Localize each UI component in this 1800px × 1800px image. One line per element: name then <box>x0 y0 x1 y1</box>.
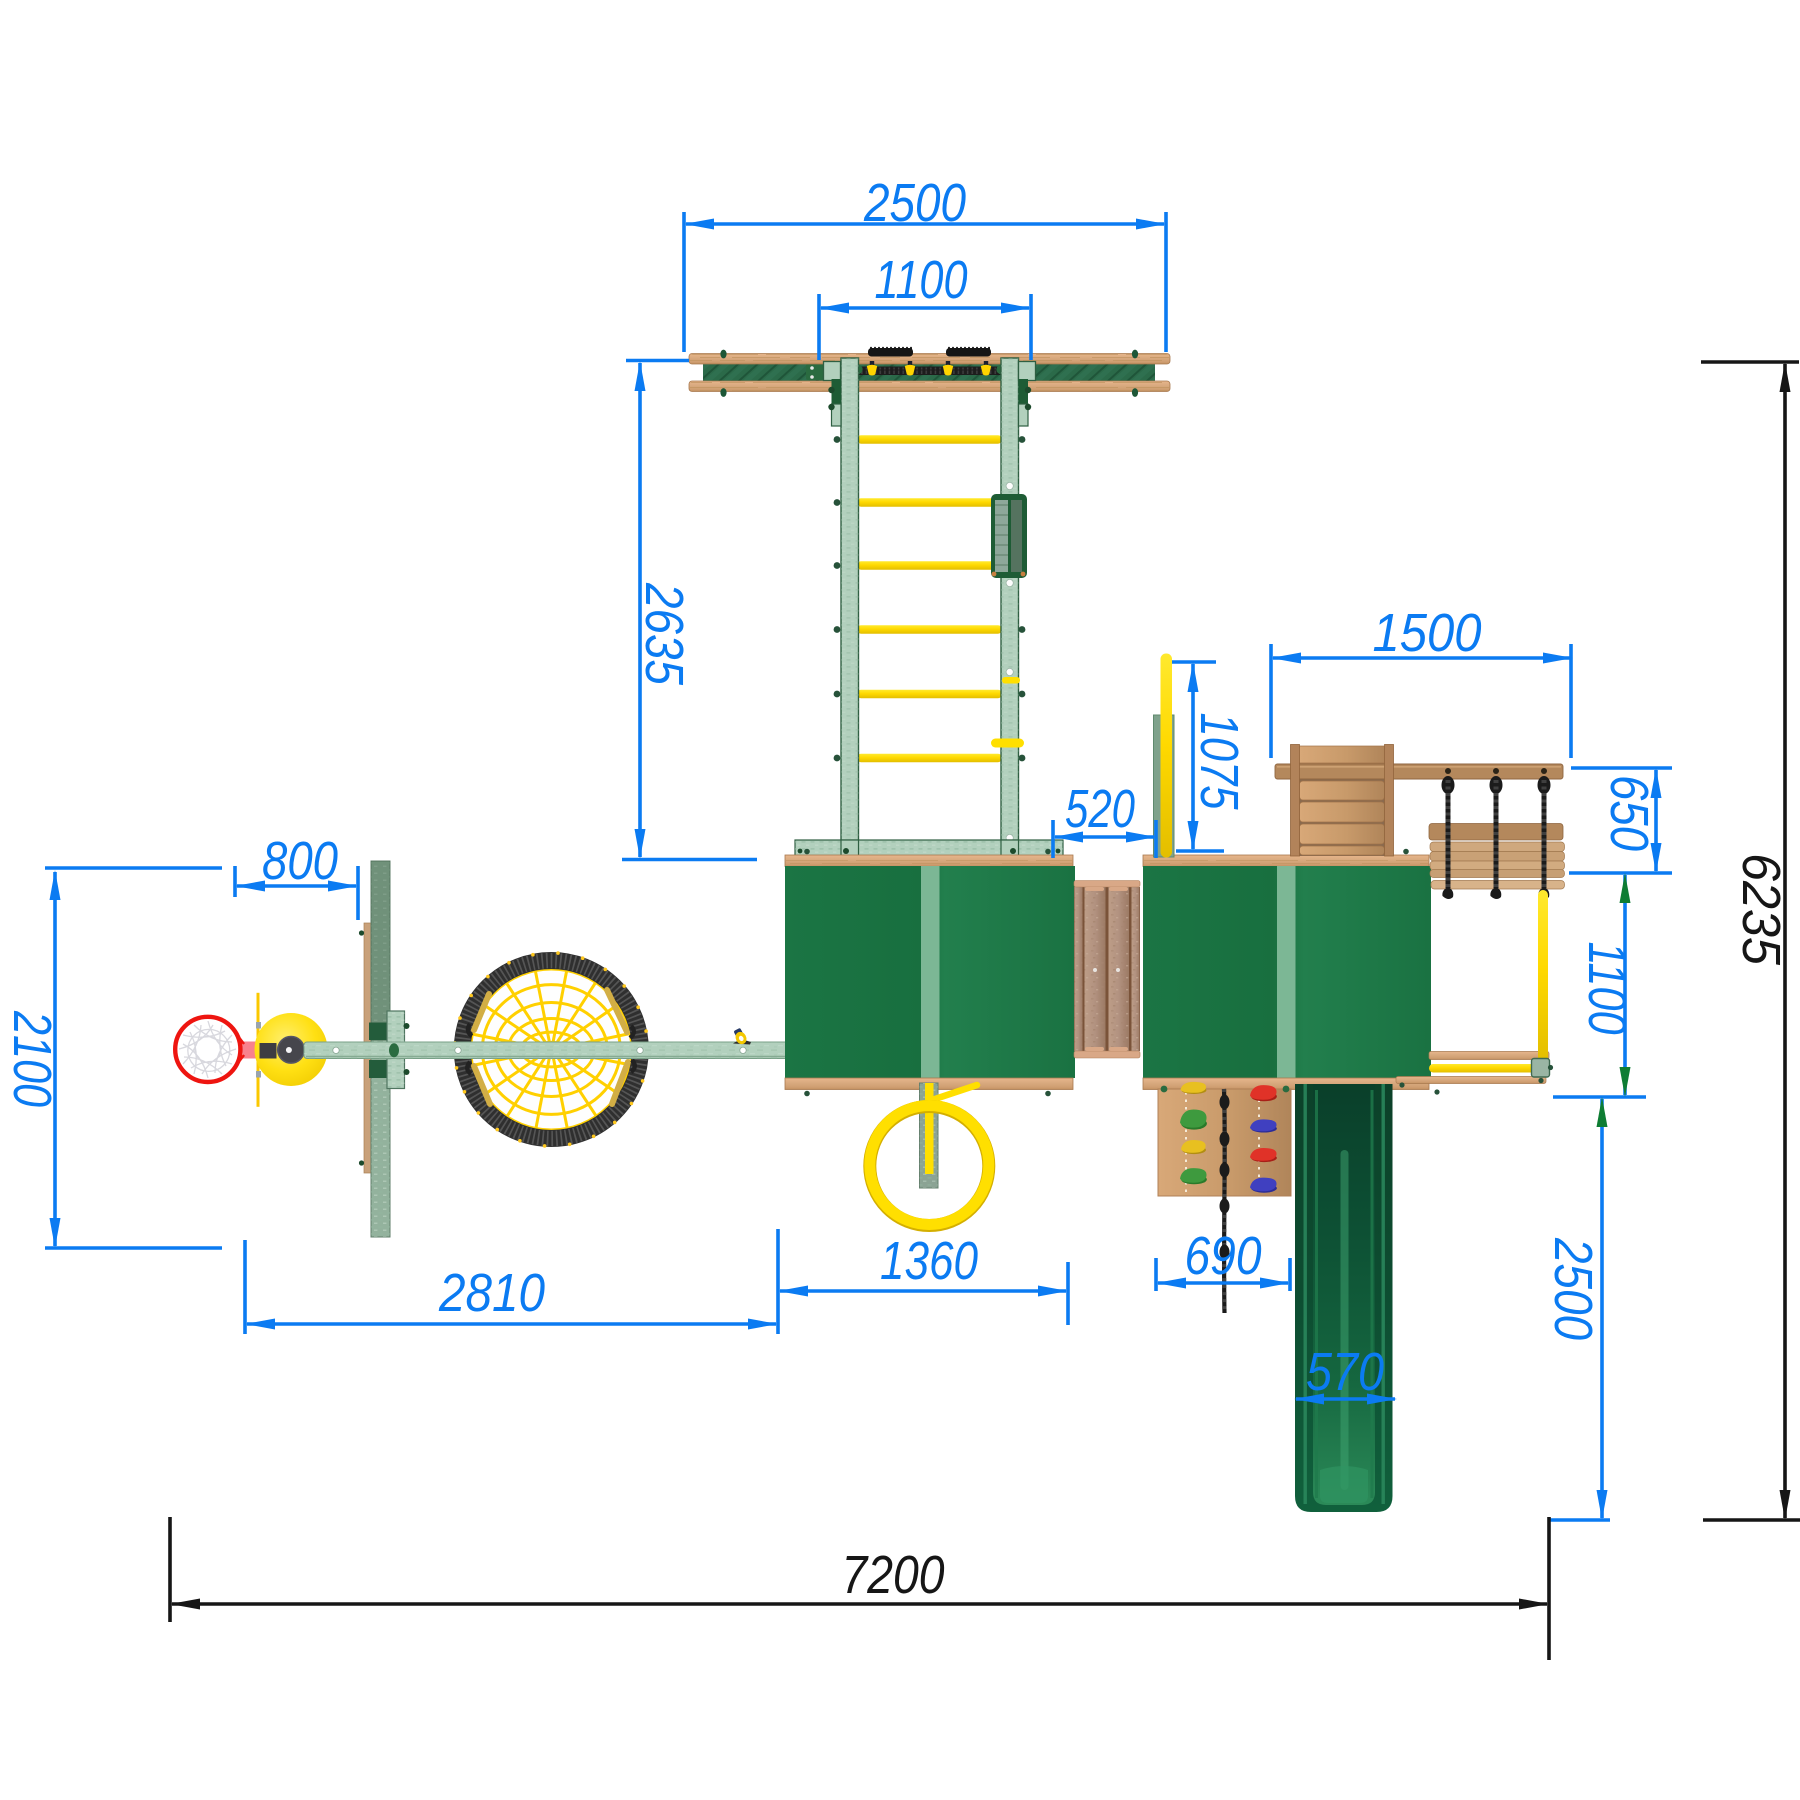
svg-text:1075: 1075 <box>1189 713 1249 811</box>
svg-text:2100: 2100 <box>2 1010 62 1107</box>
svg-text:650: 650 <box>1599 775 1659 851</box>
svg-text:1500: 1500 <box>1373 603 1482 663</box>
svg-text:2500: 2500 <box>863 173 966 233</box>
svg-text:7200: 7200 <box>842 1545 945 1605</box>
svg-text:570: 570 <box>1306 1342 1384 1402</box>
svg-text:1360: 1360 <box>880 1231 978 1291</box>
svg-text:2635: 2635 <box>634 582 694 686</box>
svg-text:2500: 2500 <box>1543 1237 1603 1340</box>
svg-text:800: 800 <box>262 831 338 891</box>
svg-text:6235: 6235 <box>1731 853 1791 966</box>
svg-text:1100: 1100 <box>875 250 968 310</box>
svg-text:690: 690 <box>1185 1226 1262 1286</box>
svg-text:520: 520 <box>1065 779 1135 839</box>
svg-text:1100: 1100 <box>1577 942 1637 1035</box>
svg-text:2810: 2810 <box>438 1263 545 1323</box>
